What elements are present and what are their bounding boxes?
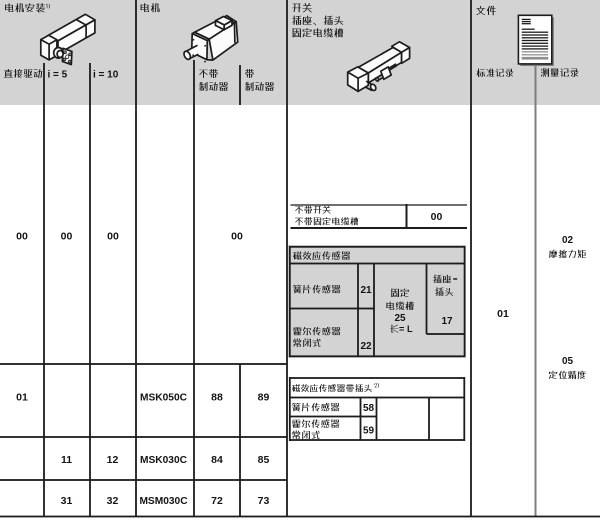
svg-text:01: 01 bbox=[16, 391, 28, 403]
svg-text:88: 88 bbox=[211, 391, 223, 403]
svg-text:i = 10: i = 10 bbox=[93, 69, 119, 80]
svg-text:12: 12 bbox=[107, 454, 119, 466]
svg-text:00: 00 bbox=[61, 230, 73, 242]
svg-text:25: 25 bbox=[394, 313, 406, 324]
svg-text:= L: = L bbox=[399, 324, 413, 334]
svg-text:MSM030C: MSM030C bbox=[139, 496, 188, 507]
svg-text:00: 00 bbox=[107, 230, 119, 242]
svg-text:i = 5: i = 5 bbox=[48, 69, 68, 80]
svg-text:22: 22 bbox=[360, 341, 372, 352]
svg-text:00: 00 bbox=[231, 230, 243, 242]
svg-text:73: 73 bbox=[258, 495, 270, 507]
svg-text:21: 21 bbox=[360, 285, 372, 296]
svg-text:MSK050C: MSK050C bbox=[140, 392, 188, 403]
svg-text:85: 85 bbox=[258, 454, 270, 466]
svg-text:84: 84 bbox=[211, 454, 223, 466]
svg-text:00: 00 bbox=[16, 230, 28, 242]
svg-text:89: 89 bbox=[258, 391, 270, 403]
svg-text:01: 01 bbox=[497, 308, 509, 320]
svg-text:02: 02 bbox=[562, 235, 574, 246]
svg-text:59: 59 bbox=[363, 426, 375, 437]
svg-text:72: 72 bbox=[211, 495, 223, 507]
svg-text:MSK030C: MSK030C bbox=[140, 455, 188, 466]
svg-text:00: 00 bbox=[431, 211, 443, 223]
svg-text:32: 32 bbox=[107, 495, 119, 507]
svg-text:05: 05 bbox=[562, 356, 574, 367]
svg-text:58: 58 bbox=[363, 403, 375, 414]
svg-text:17: 17 bbox=[441, 316, 453, 327]
svg-text:11: 11 bbox=[61, 454, 72, 466]
svg-text:31: 31 bbox=[61, 495, 73, 507]
